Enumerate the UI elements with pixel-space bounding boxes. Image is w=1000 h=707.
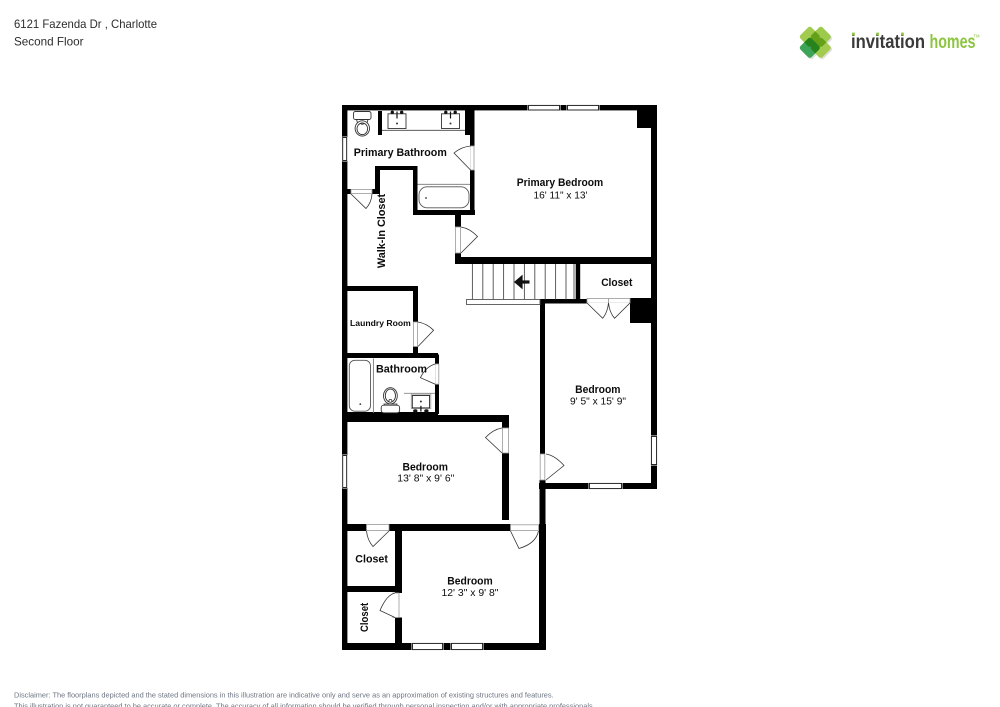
svg-text:Bedroom: Bedroom xyxy=(575,384,620,396)
svg-text:6121 Fazenda Dr , Charlotte: 6121 Fazenda Dr , Charlotte xyxy=(14,17,157,31)
svg-text:Closet: Closet xyxy=(355,554,388,566)
svg-text:Primary Bathroom: Primary Bathroom xyxy=(354,147,447,159)
svg-text:invitation: invitation xyxy=(851,31,925,53)
svg-text:Closet: Closet xyxy=(359,602,371,632)
svg-text:Bedroom: Bedroom xyxy=(447,575,492,587)
svg-text:TM: TM xyxy=(974,34,981,39)
svg-text:Bathroom: Bathroom xyxy=(376,363,427,375)
svg-text:9' 5" x 15' 9": 9' 5" x 15' 9" xyxy=(570,396,626,407)
svg-text:Bedroom: Bedroom xyxy=(403,462,448,474)
svg-text:Second Floor: Second Floor xyxy=(14,35,84,49)
svg-text:Closet: Closet xyxy=(601,277,633,289)
svg-text:This illustration is not guara: This illustration is not guaranteed to b… xyxy=(14,702,595,707)
svg-text:Disclaimer: The floorplans dep: Disclaimer: The floorplans depicted and … xyxy=(14,691,554,700)
svg-text:homes: homes xyxy=(930,31,976,53)
svg-text:Primary Bedroom: Primary Bedroom xyxy=(517,177,603,189)
svg-text:16' 11" x 13': 16' 11" x 13' xyxy=(534,191,588,202)
svg-text:Walk-In Closet: Walk-In Closet xyxy=(376,194,388,269)
svg-text:Laundry Room: Laundry Room xyxy=(350,318,411,328)
svg-text:12' 3" x 9' 8": 12' 3" x 9' 8" xyxy=(442,588,499,599)
svg-text:13' 8" x 9' 6": 13' 8" x 9' 6" xyxy=(397,473,454,484)
